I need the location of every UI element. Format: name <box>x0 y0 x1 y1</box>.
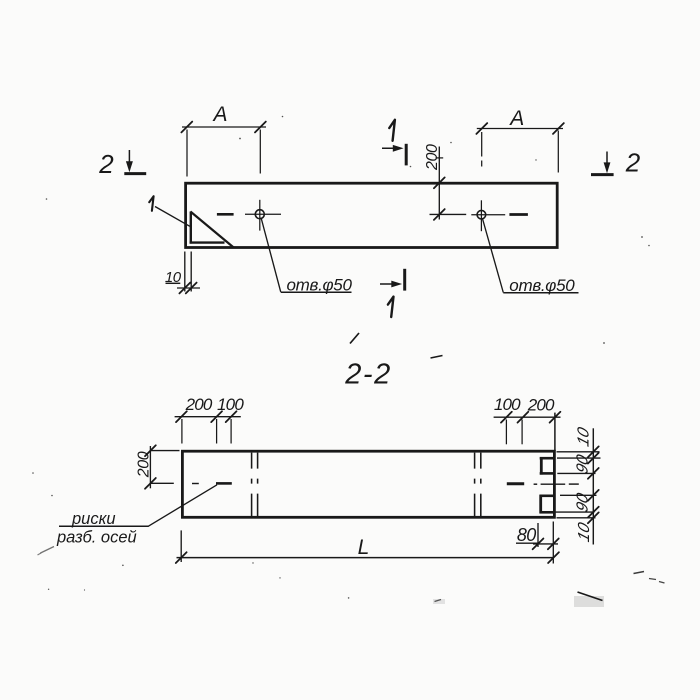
svg-text:80: 80 <box>517 525 536 545</box>
svg-text:L: L <box>358 536 370 559</box>
svg-text:A: A <box>508 107 524 130</box>
svg-text:200: 200 <box>424 144 441 171</box>
svg-text:200: 200 <box>185 395 213 414</box>
svg-text:2: 2 <box>98 149 114 179</box>
svg-text:100: 100 <box>494 395 521 414</box>
svg-text:разб. осей: разб. осей <box>56 528 137 546</box>
svg-text:A: A <box>211 103 227 126</box>
svg-text:200: 200 <box>527 395 555 414</box>
svg-text:2-2: 2-2 <box>344 359 391 391</box>
svg-text:риски: риски <box>71 510 116 528</box>
svg-text:отв.φ50: отв.φ50 <box>509 276 575 295</box>
svg-text:2: 2 <box>625 148 641 178</box>
svg-text:отв.φ50: отв.φ50 <box>287 276 353 295</box>
svg-text:200: 200 <box>135 451 152 478</box>
svg-text:100: 100 <box>217 395 244 414</box>
